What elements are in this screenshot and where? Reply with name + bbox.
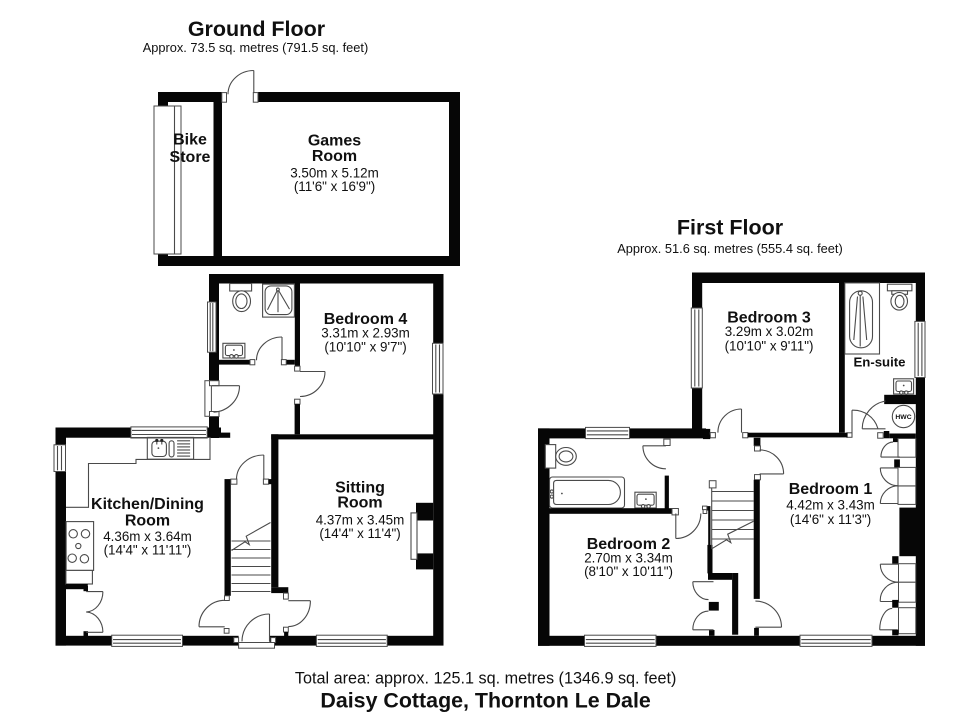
svg-text:Approx. 73.5 sq. metres (791.5: Approx. 73.5 sq. metres (791.5 sq. feet) [143,40,368,55]
svg-text:(14'4" x 11'4"): (14'4" x 11'4") [319,526,400,541]
svg-text:4.42m x 3.43m: 4.42m x 3.43m [786,498,875,513]
svg-text:Bike: Bike [173,132,207,149]
svg-text:Daisy Cottage, Thornton Le Dal: Daisy Cottage, Thornton Le Dale [320,689,651,712]
svg-text:Approx. 51.6 sq. metres (555.4: Approx. 51.6 sq. metres (555.4 sq. feet) [617,241,842,256]
svg-text:(14'6" x 11'3"): (14'6" x 11'3") [790,512,871,527]
svg-text:(8'10" x 10'11"): (8'10" x 10'11") [584,564,673,579]
svg-text:(14'4" x 11'11"): (14'4" x 11'11") [104,543,192,558]
svg-text:Games: Games [308,133,361,150]
svg-text:Total area: approx. 125.1 sq.: Total area: approx. 125.1 sq. metres (13… [295,670,677,688]
svg-text:Store: Store [170,149,211,166]
svg-text:3.29m x 3.02m: 3.29m x 3.02m [725,324,814,339]
svg-text:(11'6" x 16'9"): (11'6" x 16'9") [294,179,375,194]
svg-text:En-suite: En-suite [853,355,905,370]
svg-text:Room: Room [337,495,382,512]
svg-text:Bedroom 1: Bedroom 1 [789,481,873,498]
svg-text:HWC: HWC [895,414,911,421]
svg-text:Room: Room [312,148,357,165]
svg-text:Kitchen/Dining: Kitchen/Dining [91,496,204,513]
svg-text:First Floor: First Floor [677,216,784,240]
svg-text:Room: Room [125,513,170,530]
svg-text:3.31m x 2.93m: 3.31m x 2.93m [321,325,410,340]
svg-text:Ground Floor: Ground Floor [188,17,326,41]
svg-text:(10'10" x 9'11"): (10'10" x 9'11") [725,339,814,354]
svg-text:(10'10" x 9'7"): (10'10" x 9'7") [324,340,406,355]
